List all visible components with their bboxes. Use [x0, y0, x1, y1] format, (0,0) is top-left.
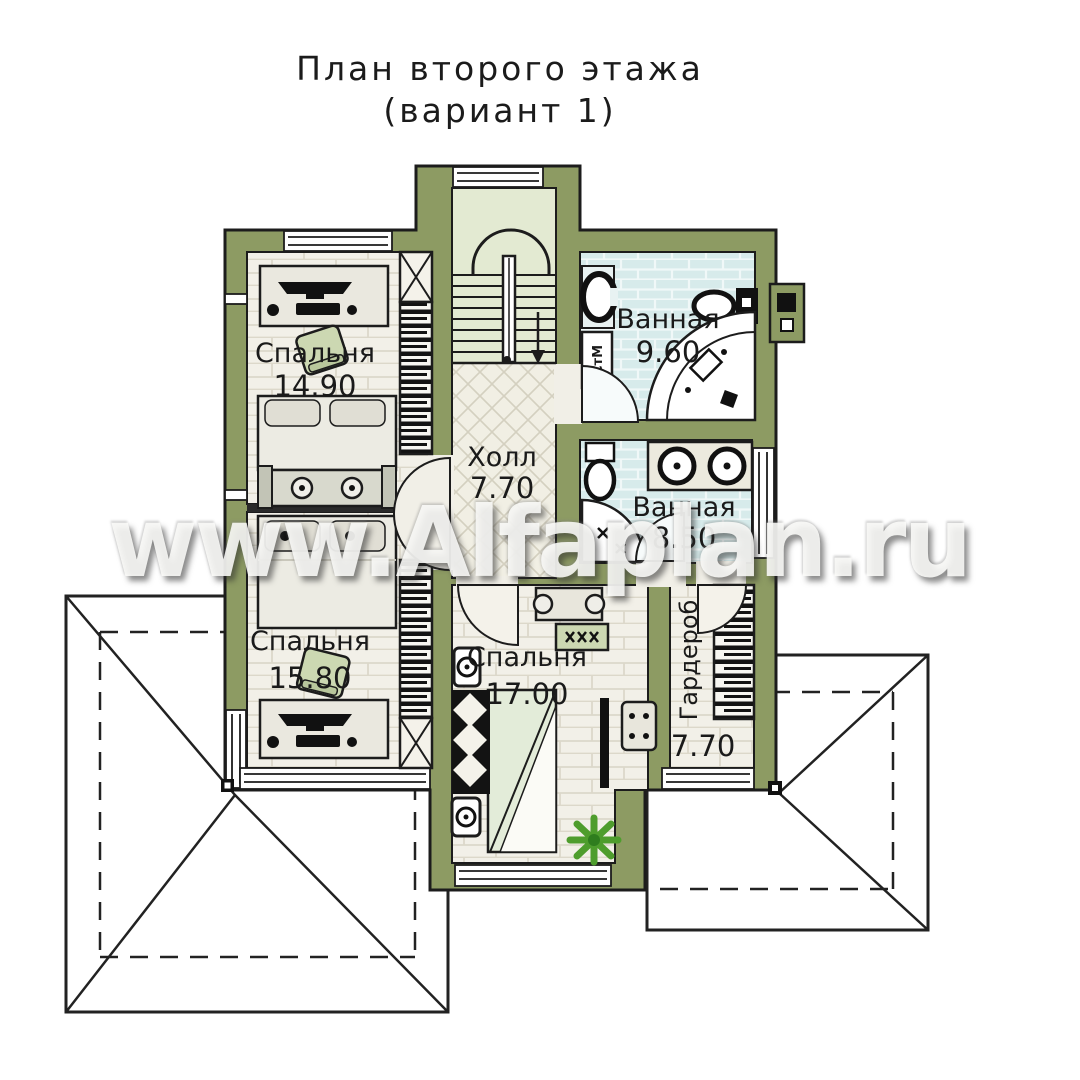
- svg-text:9.60: 9.60: [636, 335, 701, 369]
- chimney: [770, 284, 804, 342]
- svg-text:Спальня: Спальня: [255, 338, 375, 369]
- desk-computer-icon: [260, 700, 388, 758]
- window-bedroom-1-top: [284, 231, 392, 251]
- tv-icon: [600, 698, 609, 788]
- window-bedroom-3-bay: [455, 865, 611, 886]
- svg-text:Ванная: Ванная: [616, 304, 719, 335]
- bench-icon: [258, 466, 396, 508]
- svg-text:Ванная: Ванная: [632, 492, 735, 523]
- wall-tick: [225, 294, 247, 304]
- svg-text:Спальня: Спальня: [467, 642, 587, 673]
- chair-icon: [622, 702, 656, 750]
- window-bedroom-2-bottom: [240, 768, 430, 789]
- toilet-2-icon: [586, 443, 614, 499]
- svg-text:7.70: 7.70: [671, 729, 736, 763]
- svg-text:7.70: 7.70: [470, 471, 535, 505]
- desk-computer-icon: [260, 266, 388, 326]
- svg-text:17.00: 17.00: [485, 677, 568, 711]
- bed-icon: [258, 396, 396, 470]
- svg-text:8.50: 8.50: [652, 521, 717, 555]
- double-vanity-icon: [648, 442, 752, 490]
- window-bathroom-2-right: [753, 448, 774, 558]
- wall-tick: [225, 490, 247, 500]
- floor-plan-page: План второго этажа (вариант 1): [0, 0, 1080, 1080]
- speaker-icon: [452, 798, 480, 836]
- window-stair-bay: [453, 167, 543, 187]
- svg-text:Холл: Холл: [467, 442, 537, 473]
- svg-text:14.90: 14.90: [273, 369, 356, 403]
- svg-text:Спальня: Спальня: [250, 626, 370, 657]
- svg-text:15.80: 15.80: [268, 661, 351, 695]
- svg-text:Гардероб: Гардероб: [675, 600, 703, 721]
- bench-icon: [534, 588, 604, 620]
- window-wardrobe-bottom: [662, 768, 754, 789]
- room-label-hall: Холл 7.70: [467, 442, 537, 505]
- closet-icon: [400, 560, 432, 768]
- closet-icon: [400, 252, 432, 454]
- floor-plan-drawing: СтМ: [0, 0, 1080, 1080]
- plant-icon: [570, 818, 618, 862]
- bed-icon: [258, 516, 396, 628]
